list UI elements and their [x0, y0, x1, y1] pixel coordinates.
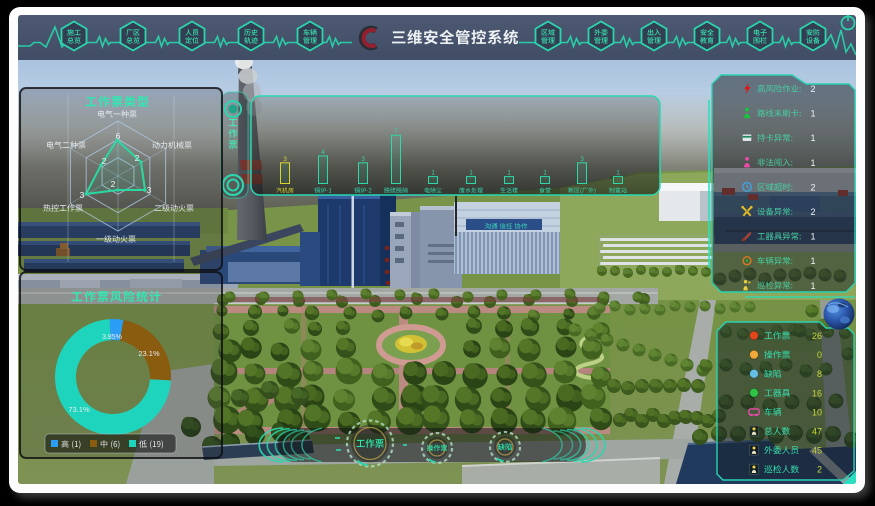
svg-text:3: 3 — [283, 156, 287, 163]
svg-text:1: 1 — [810, 281, 815, 291]
svg-text:26: 26 — [812, 331, 822, 341]
svg-text:2: 2 — [810, 207, 815, 217]
svg-text:1: 1 — [543, 170, 547, 177]
svg-text:2: 2 — [111, 179, 116, 189]
svg-text:4: 4 — [321, 149, 325, 156]
svg-text:1: 1 — [431, 170, 435, 177]
svg-text:2: 2 — [810, 182, 815, 192]
svg-text:1: 1 — [810, 256, 815, 266]
svg-text:10: 10 — [812, 407, 822, 417]
svg-text:16: 16 — [812, 388, 822, 398]
svg-text:1: 1 — [507, 170, 511, 177]
svg-text:1: 1 — [810, 133, 815, 143]
svg-text:3: 3 — [361, 156, 365, 163]
svg-text:3: 3 — [147, 185, 152, 195]
svg-text:3: 3 — [80, 190, 85, 200]
svg-text:1: 1 — [810, 158, 815, 168]
svg-text:2: 2 — [817, 465, 822, 475]
svg-text:23.1%: 23.1% — [138, 349, 160, 358]
svg-text:2: 2 — [102, 156, 107, 166]
svg-text:8: 8 — [817, 369, 822, 379]
svg-text:1: 1 — [469, 170, 473, 177]
svg-text:7: 7 — [394, 128, 398, 135]
svg-text:2: 2 — [810, 84, 815, 94]
svg-text:73.1%: 73.1% — [68, 405, 90, 414]
svg-text:1: 1 — [616, 170, 620, 177]
svg-text:6: 6 — [116, 131, 121, 141]
svg-text:2: 2 — [135, 153, 140, 163]
svg-text:3.85%: 3.85% — [102, 334, 122, 341]
svg-text:45: 45 — [812, 446, 822, 456]
svg-text:3: 3 — [580, 156, 584, 163]
svg-text:0: 0 — [817, 350, 822, 360]
svg-text:1: 1 — [810, 232, 815, 242]
svg-text:1: 1 — [810, 109, 815, 119]
svg-text:47: 47 — [812, 427, 822, 437]
